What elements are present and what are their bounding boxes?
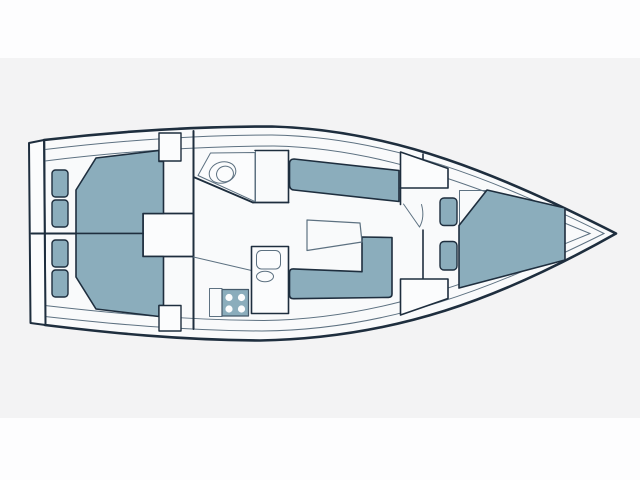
stove-burner bbox=[238, 305, 245, 312]
berth-cushion bbox=[52, 200, 68, 227]
stove-burner bbox=[225, 294, 232, 301]
berth-cushion bbox=[52, 270, 68, 297]
v-berth-cushion bbox=[440, 198, 457, 226]
page bbox=[0, 0, 640, 480]
aft-locker-port bbox=[159, 133, 181, 161]
stove bbox=[222, 290, 249, 317]
sink-unit bbox=[252, 247, 289, 314]
stove-burner bbox=[225, 305, 232, 312]
aft-locker-starboard bbox=[159, 306, 181, 332]
berth-cushion bbox=[52, 170, 68, 197]
companionway-engine-box bbox=[143, 214, 194, 257]
berth-cushion bbox=[52, 240, 68, 267]
stove-burner bbox=[238, 294, 245, 301]
v-berth-cushion bbox=[440, 242, 457, 271]
boat-floor-plan bbox=[0, 0, 640, 480]
